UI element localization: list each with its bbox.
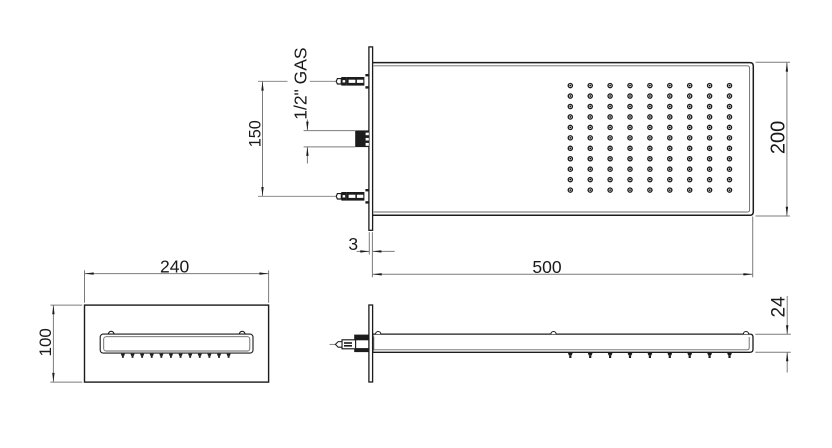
svg-text:500: 500 <box>532 257 561 277</box>
svg-text:240: 240 <box>160 256 189 276</box>
svg-text:3: 3 <box>348 234 358 254</box>
svg-text:24: 24 <box>769 296 790 318</box>
svg-text:1/2" GAS: 1/2" GAS <box>290 47 310 119</box>
svg-text:150: 150 <box>246 120 264 147</box>
svg-text:200: 200 <box>767 121 789 154</box>
svg-text:100: 100 <box>36 328 55 356</box>
